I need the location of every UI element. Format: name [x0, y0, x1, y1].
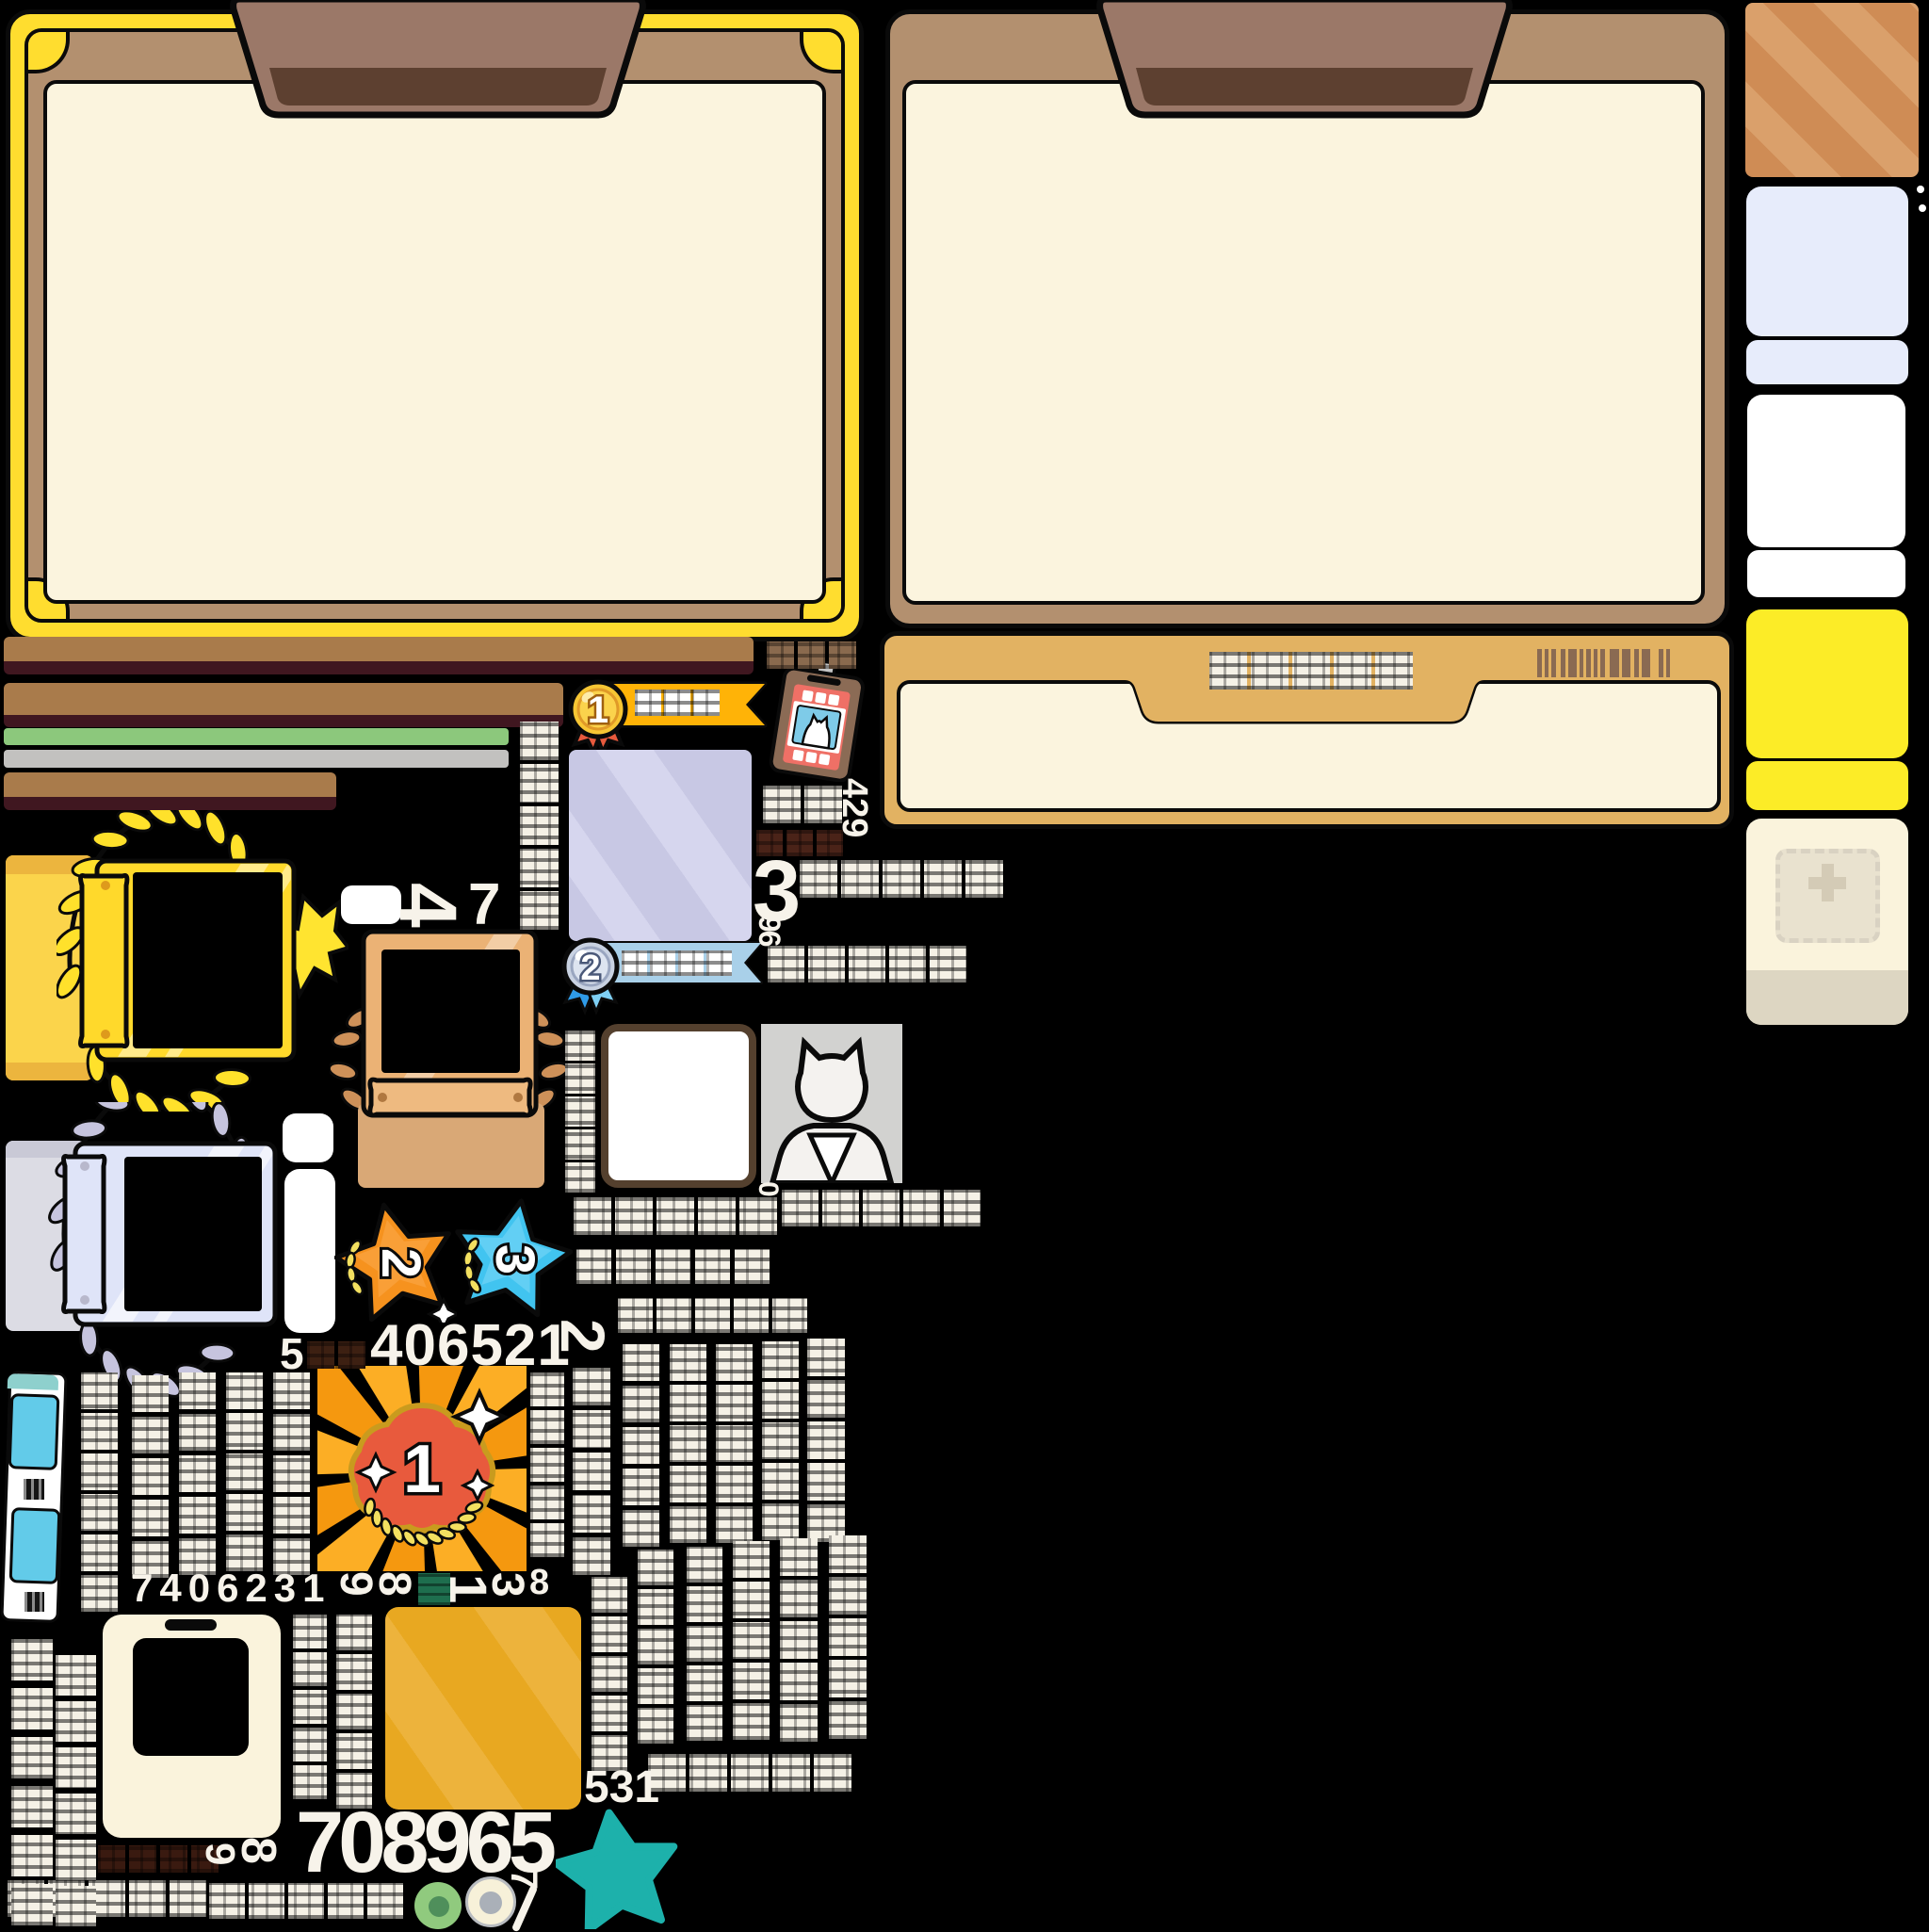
svg-text:1: 1	[588, 690, 608, 731]
svg-text:3: 3	[484, 1244, 545, 1274]
svg-text:2: 2	[370, 1248, 431, 1278]
svg-text:1: 1	[403, 1432, 441, 1507]
svg-text:2: 2	[580, 949, 600, 988]
